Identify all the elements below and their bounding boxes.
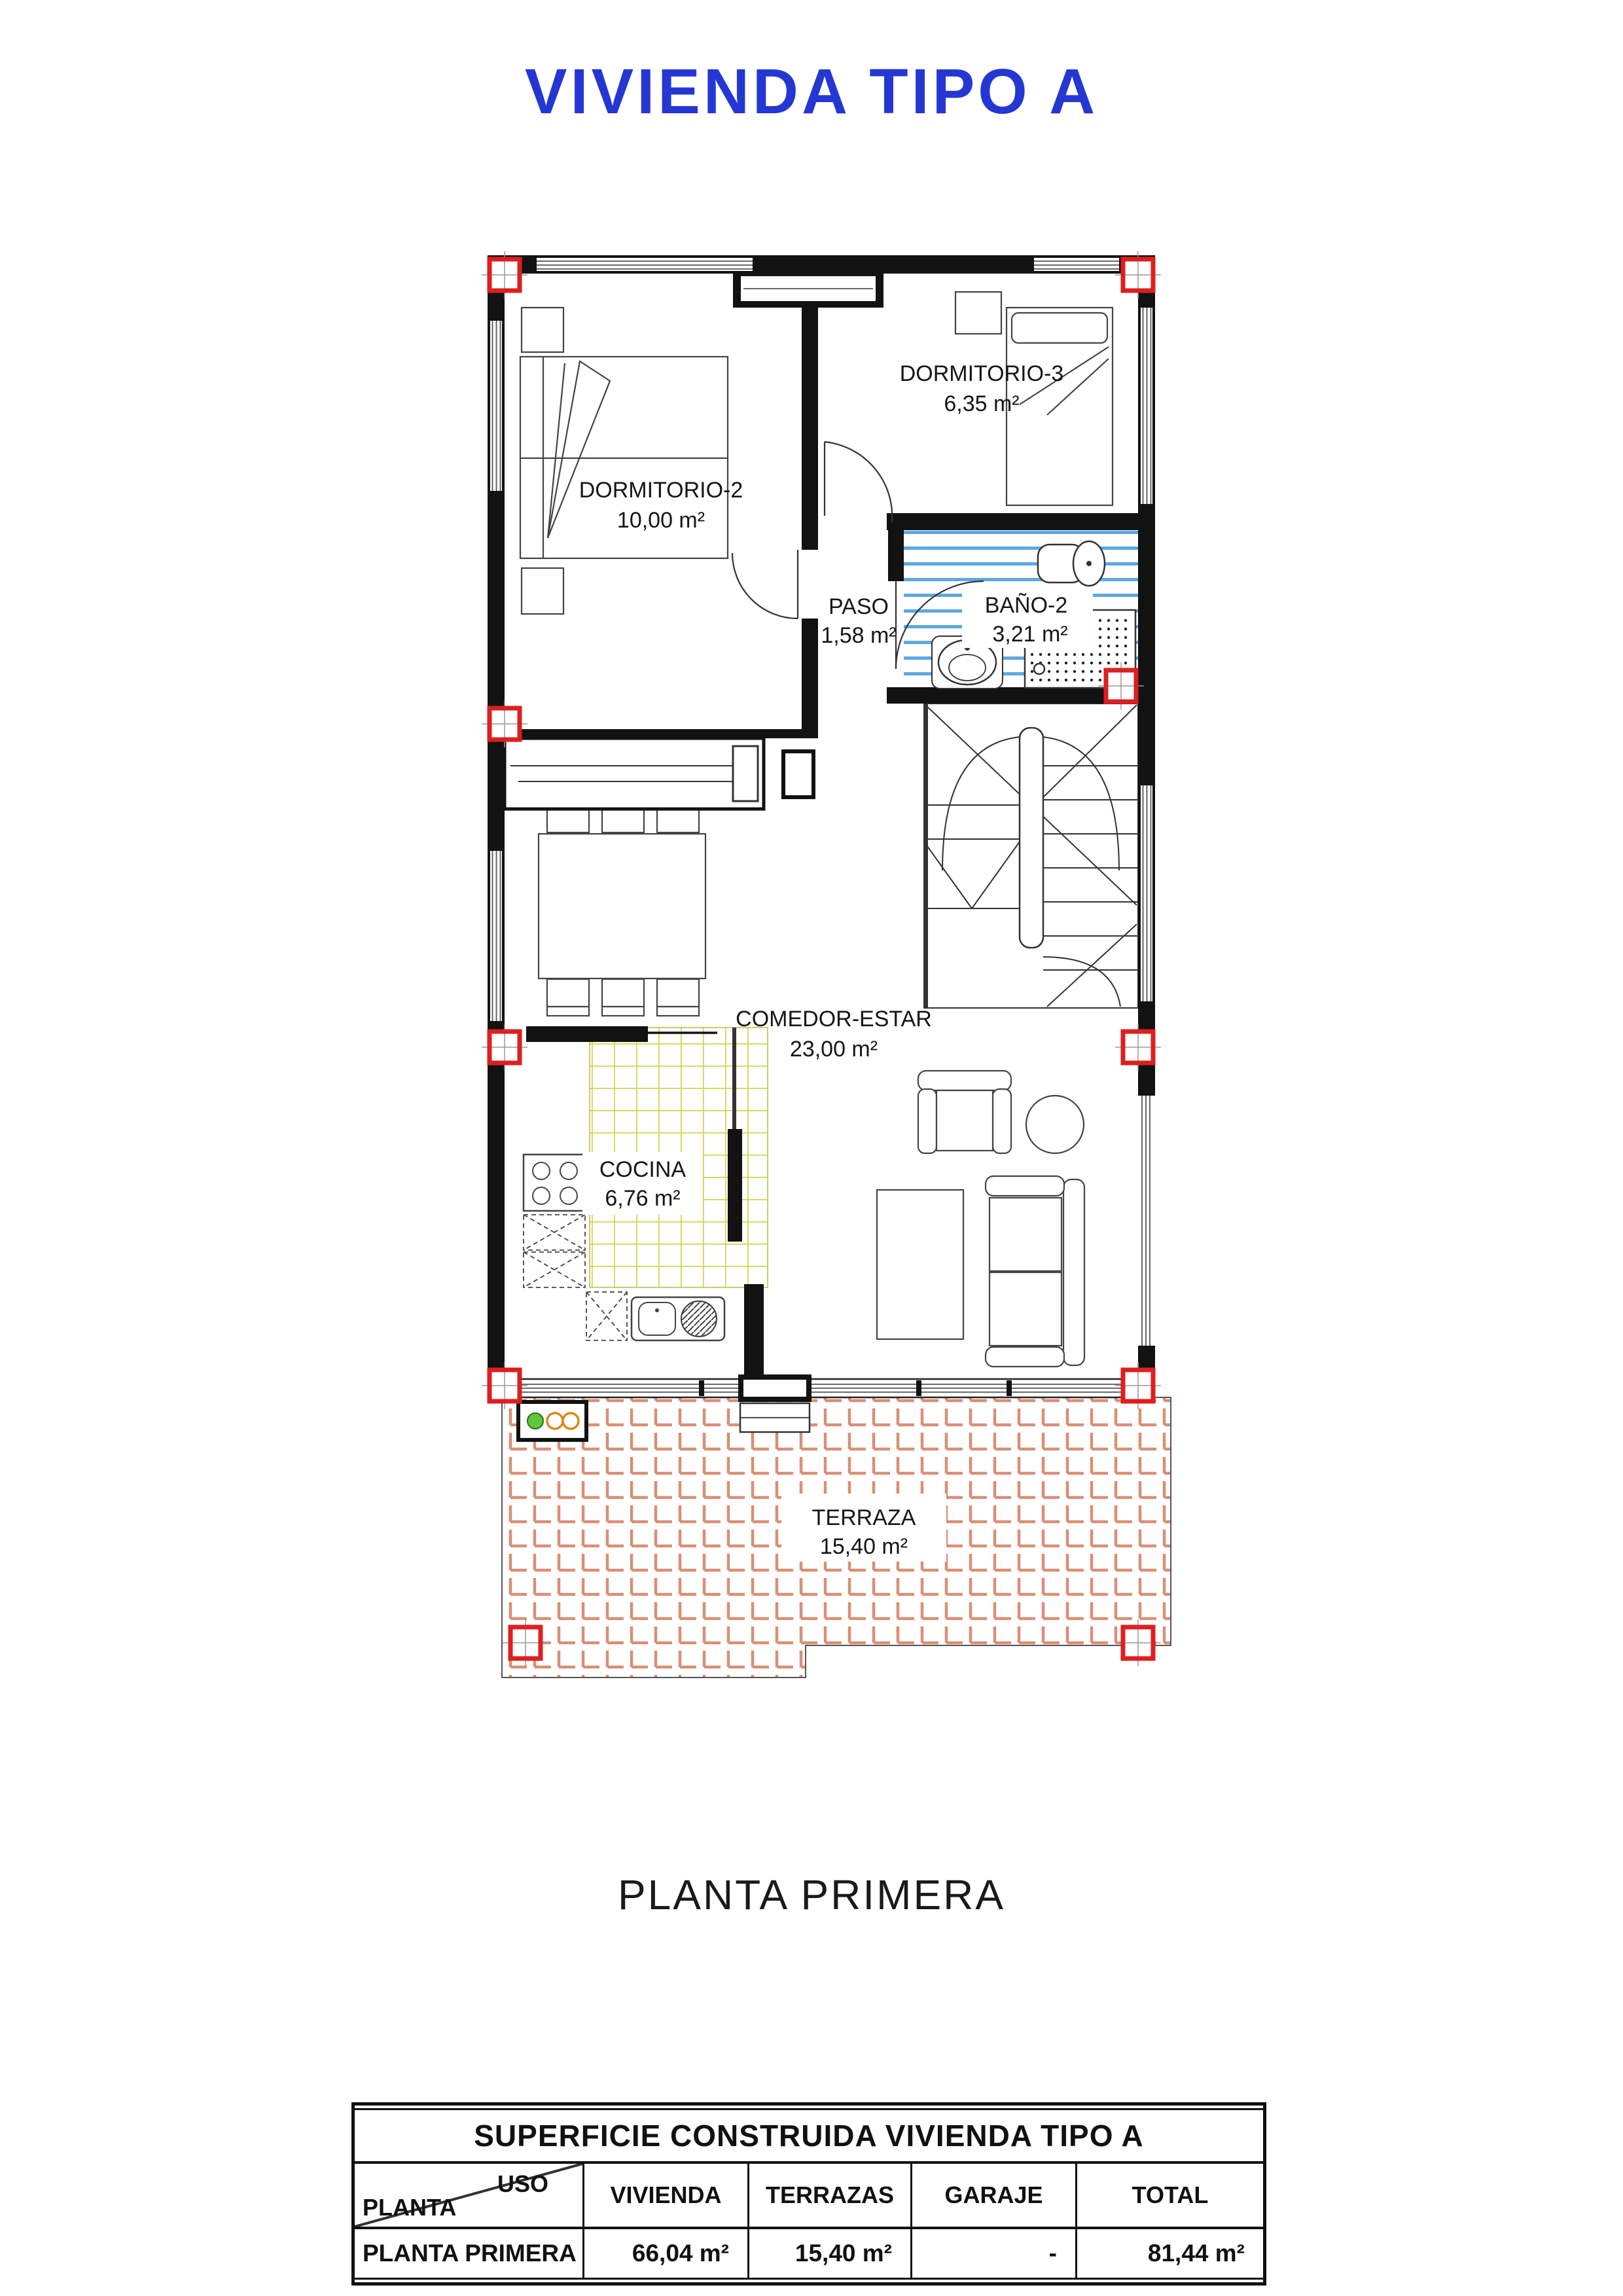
floor-caption: PLANTA PRIMERA [0,1871,1623,1919]
stairs [924,704,1138,1008]
label-paso-area: 1,58 m² [821,623,896,648]
label-bano2-name: BAÑO-2 [985,593,1068,618]
corner-planta-label: PLANTA [363,2194,456,2221]
row-label: PLANTA PRIMERA [355,2229,582,2278]
label-dormitorio2-name: DORMITORIO-2 [579,478,743,503]
label-paso-name: PASO [829,594,889,619]
table-corner-cell: USO PLANTA [355,2164,582,2227]
label-terraza-area: 15,40 m² [820,1534,908,1559]
label-bano2-area: 3,21 m² [992,622,1067,647]
table-row: PLANTA PRIMERA 66,04 m² 15,40 m² - 81,44… [355,2229,1263,2278]
column-header-terrazas: TERRAZAS [747,2164,910,2227]
label-cocina-area: 6,76 m² [605,1186,680,1211]
page: VIVIENDA TIPO A [0,0,1623,2296]
sofa [986,1176,1084,1367]
column-header-garaje: GARAJE [910,2164,1075,2227]
boiler-unit [518,1402,586,1440]
armchair [918,1071,1011,1153]
built-in-wardrobe [505,738,764,809]
label-dormitorio3-name: DORMITORIO-3 [900,361,1064,386]
row-value-terrazas: 15,40 m² [747,2229,910,2278]
terrace-door [738,1374,811,1432]
column-header-vivienda: VIVIENDA [582,2164,747,2227]
label-cocina-name: COCINA [599,1157,687,1182]
coffee-table [877,1190,963,1339]
corner-uso-label: USO [497,2170,548,2198]
row-value-vivienda: 66,04 m² [582,2229,747,2278]
stove [524,1155,586,1211]
label-dormitorio3-area: 6,35 m² [944,391,1019,416]
row-value-garaje: - [910,2229,1075,2278]
double-bed [520,308,728,614]
surface-table: SUPERFICIE CONSTRUIDA VIVIENDA TIPO A US… [351,2102,1266,2286]
dining-table-set [539,796,705,1016]
row-value-total: 81,44 m² [1075,2229,1263,2278]
label-comedor-area: 23,00 m² [790,1037,878,1062]
kitchen-sink [632,1297,724,1340]
label-dormitorio2-area: 10,00 m² [617,508,705,533]
column-header-total: TOTAL [1075,2164,1263,2227]
table-title: SUPERFICIE CONSTRUIDA VIVIENDA TIPO A [355,2110,1263,2164]
round-side-table [1026,1096,1084,1153]
label-terraza-name: TERRAZA [812,1505,916,1530]
toilet [1038,541,1105,586]
table-header-row: USO PLANTA VIVIENDA TERRAZAS GARAJE TOTA… [355,2164,1263,2229]
page-title: VIVIENDA TIPO A [0,55,1623,128]
label-comedor-name: COMEDOR-ESTAR [736,1007,932,1031]
floor-plan: DORMITORIO-2 10,00 m² DORMITORIO-3 6,35 … [458,242,1191,1702]
